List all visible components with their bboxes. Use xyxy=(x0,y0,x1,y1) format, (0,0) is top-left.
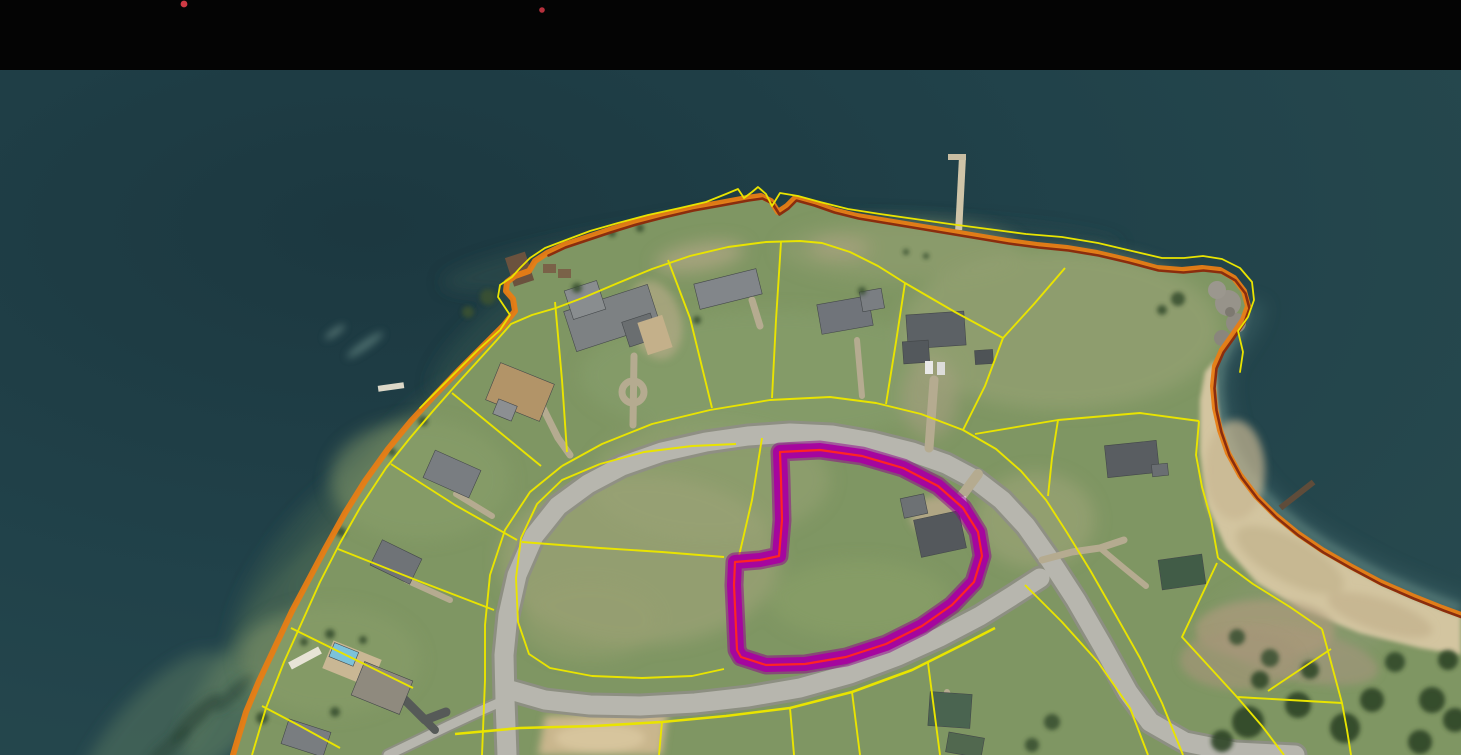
dock-shed-2 xyxy=(558,269,571,278)
house-east-green xyxy=(1158,554,1206,590)
no-data-top-bar xyxy=(0,0,1461,70)
map-marker-1[interactable] xyxy=(181,1,188,8)
map-viewport[interactable] xyxy=(0,0,1461,755)
dock-shed-1 xyxy=(543,264,556,273)
map-canvas[interactable] xyxy=(0,0,1461,755)
map-marker-2[interactable] xyxy=(539,7,545,13)
pier-head xyxy=(948,154,966,160)
